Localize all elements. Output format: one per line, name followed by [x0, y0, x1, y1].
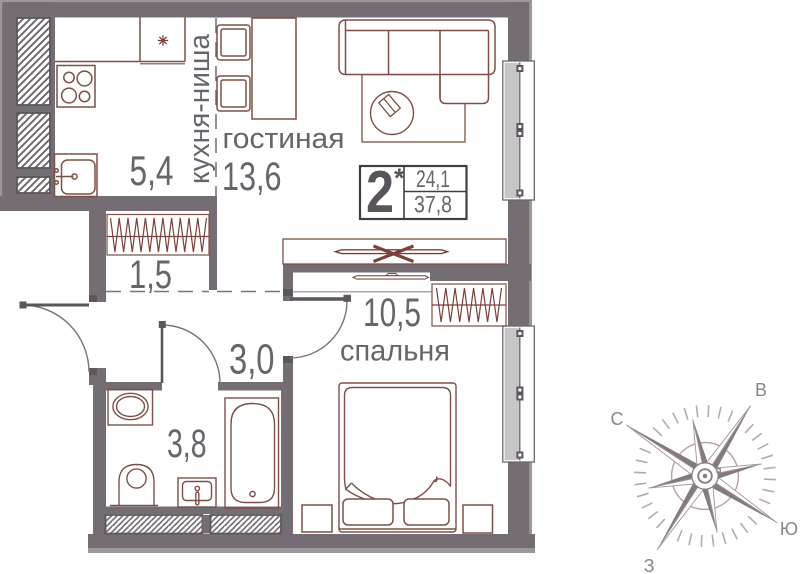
svg-text:З: З: [644, 556, 655, 574]
svg-text:13,6: 13,6: [222, 155, 282, 199]
svg-text:С: С: [611, 409, 624, 429]
svg-text:*: *: [394, 163, 405, 193]
svg-text:Ю: Ю: [780, 519, 798, 539]
svg-text:кухня-ниша: кухня-ниша: [184, 33, 216, 184]
svg-text:3,0: 3,0: [229, 336, 275, 384]
svg-text:2: 2: [366, 159, 394, 225]
svg-text:спальня: спальня: [340, 335, 450, 368]
svg-text:10,5: 10,5: [363, 291, 421, 335]
svg-text:1,5: 1,5: [129, 253, 172, 297]
svg-text:5,4: 5,4: [130, 147, 174, 194]
svg-text:гостиная: гостиная: [223, 123, 345, 155]
svg-text:24,1: 24,1: [416, 166, 450, 193]
svg-text:37,8: 37,8: [414, 192, 452, 219]
svg-text:3,8: 3,8: [167, 422, 207, 466]
svg-text:В: В: [755, 380, 767, 400]
